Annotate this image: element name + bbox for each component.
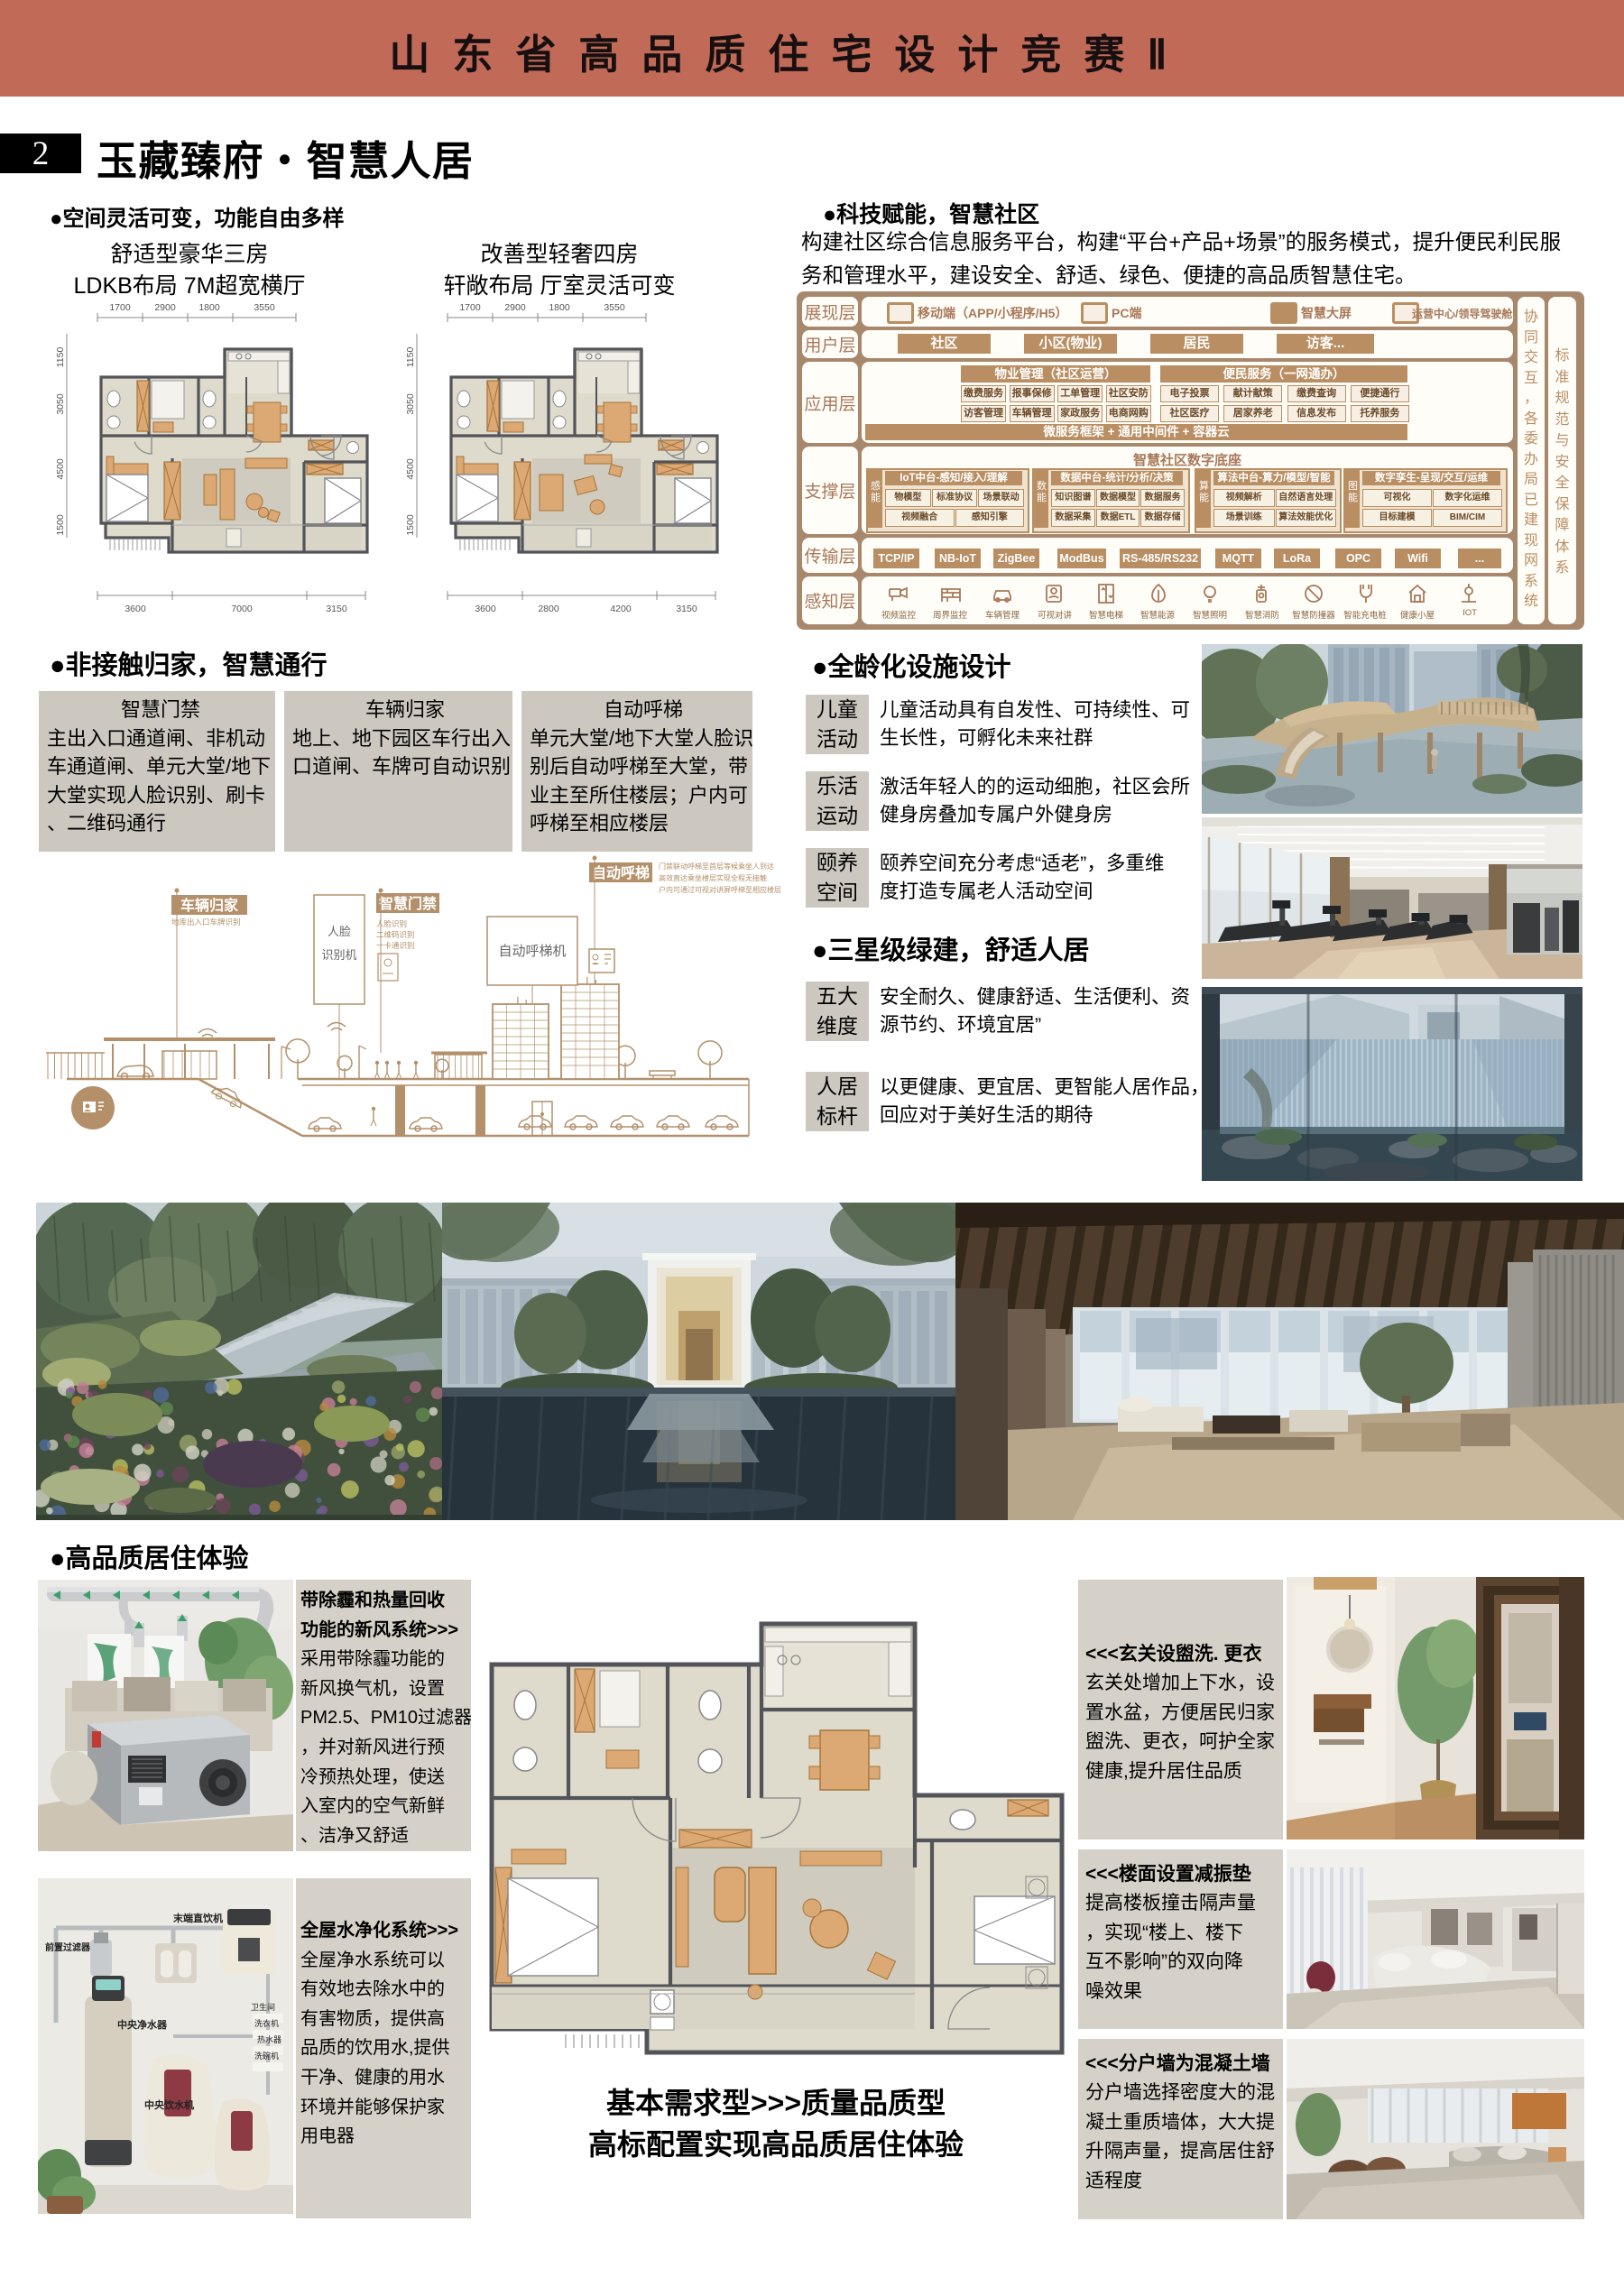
svg-text:3550: 3550: [604, 302, 625, 313]
svg-text:门禁联动呼梯至首层等候乘坐人到达: 门禁联动呼梯至首层等候乘坐人到达: [659, 862, 774, 871]
svg-text:4200: 4200: [610, 604, 632, 614]
svg-text:4500: 4500: [405, 458, 416, 480]
svg-text:1150: 1150: [405, 347, 416, 368]
svg-text:4500: 4500: [55, 458, 66, 480]
svg-text:一卡通识别: 一卡通识别: [376, 941, 415, 950]
svg-text:自动呼梯机: 自动呼梯机: [498, 944, 566, 959]
svg-text:自动呼梯: 自动呼梯: [592, 864, 650, 881]
svg-text:人脸: 人脸: [328, 925, 351, 938]
svg-text:中央净水器: 中央净水器: [117, 2018, 168, 2031]
svg-text:1800: 1800: [198, 302, 220, 313]
svg-text:1500: 1500: [55, 514, 66, 536]
svg-text:前置过滤器: 前置过滤器: [45, 1941, 91, 1953]
svg-text:1700: 1700: [459, 302, 481, 313]
svg-text:2900: 2900: [154, 302, 176, 313]
svg-text:2900: 2900: [504, 302, 526, 313]
svg-text:3050: 3050: [405, 393, 416, 415]
svg-text:二维码识别: 二维码识别: [376, 930, 415, 939]
svg-text:热水器: 热水器: [257, 2034, 281, 2044]
svg-text:3150: 3150: [676, 604, 697, 614]
svg-text:智慧门禁: 智慧门禁: [379, 895, 437, 912]
svg-text:中央饮水机: 中央饮水机: [144, 2098, 194, 2111]
svg-text:1150: 1150: [55, 347, 66, 368]
svg-text:3550: 3550: [254, 302, 275, 313]
svg-text:高效直达乘坐楼层实现全程无接触: 高效直达乘坐楼层实现全程无接触: [659, 873, 767, 882]
svg-text:车辆归家: 车辆归家: [180, 897, 239, 914]
svg-text:3600: 3600: [125, 604, 146, 614]
svg-text:户内可通过可视对讲屏呼梯至相应楼层: 户内可通过可视对讲屏呼梯至相应楼层: [659, 885, 781, 894]
svg-text:洗碗机: 洗碗机: [254, 2051, 279, 2061]
svg-text:2800: 2800: [538, 604, 559, 614]
svg-text:洗衣机: 洗衣机: [254, 2018, 279, 2028]
svg-text:1500: 1500: [405, 514, 416, 536]
svg-text:3150: 3150: [326, 604, 347, 614]
svg-text:识别机: 识别机: [321, 948, 356, 962]
svg-text:末端直饮机: 末端直饮机: [172, 1912, 223, 1924]
svg-text:1700: 1700: [109, 302, 131, 313]
svg-text:地库出入口车牌识别: 地库出入口车牌识别: [171, 917, 241, 927]
svg-text:7000: 7000: [231, 604, 253, 614]
svg-text:1800: 1800: [549, 302, 570, 313]
svg-text:卫生间: 卫生间: [251, 2002, 275, 2012]
svg-text:3600: 3600: [475, 604, 496, 614]
svg-text:3050: 3050: [55, 393, 66, 415]
